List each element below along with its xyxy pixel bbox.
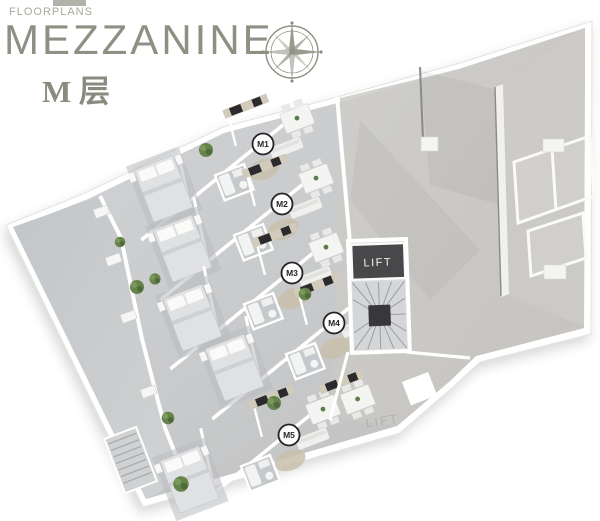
unit-label: M5 bbox=[283, 430, 295, 440]
lift-shaft: LIFT bbox=[351, 243, 405, 280]
spiral-staircase bbox=[352, 281, 406, 350]
unit-label: M1 bbox=[257, 139, 269, 149]
page-subtitle-chinese: M 层 bbox=[42, 66, 110, 111]
page-title: MEZZANINE bbox=[4, 16, 274, 64]
unit-label: M2 bbox=[276, 199, 288, 209]
unit-label: M3 bbox=[286, 268, 298, 278]
unit-marker-m2: M2 bbox=[272, 194, 293, 215]
column bbox=[543, 139, 564, 152]
unit-marker-m3: M3 bbox=[282, 263, 303, 284]
unit-marker-m5: M5 bbox=[279, 425, 300, 446]
unit-marker-m1: M1 bbox=[253, 134, 274, 155]
floorplan-page: FLOORPLANS MEZZANINE M 层 bbox=[0, 0, 600, 521]
unit-marker-m4: M4 bbox=[324, 313, 345, 334]
column bbox=[544, 265, 566, 279]
lift-shaft-label: LIFT bbox=[363, 256, 392, 269]
lift-core: LIFT bbox=[348, 239, 410, 353]
column bbox=[421, 137, 438, 151]
unit-label: M4 bbox=[328, 318, 340, 328]
